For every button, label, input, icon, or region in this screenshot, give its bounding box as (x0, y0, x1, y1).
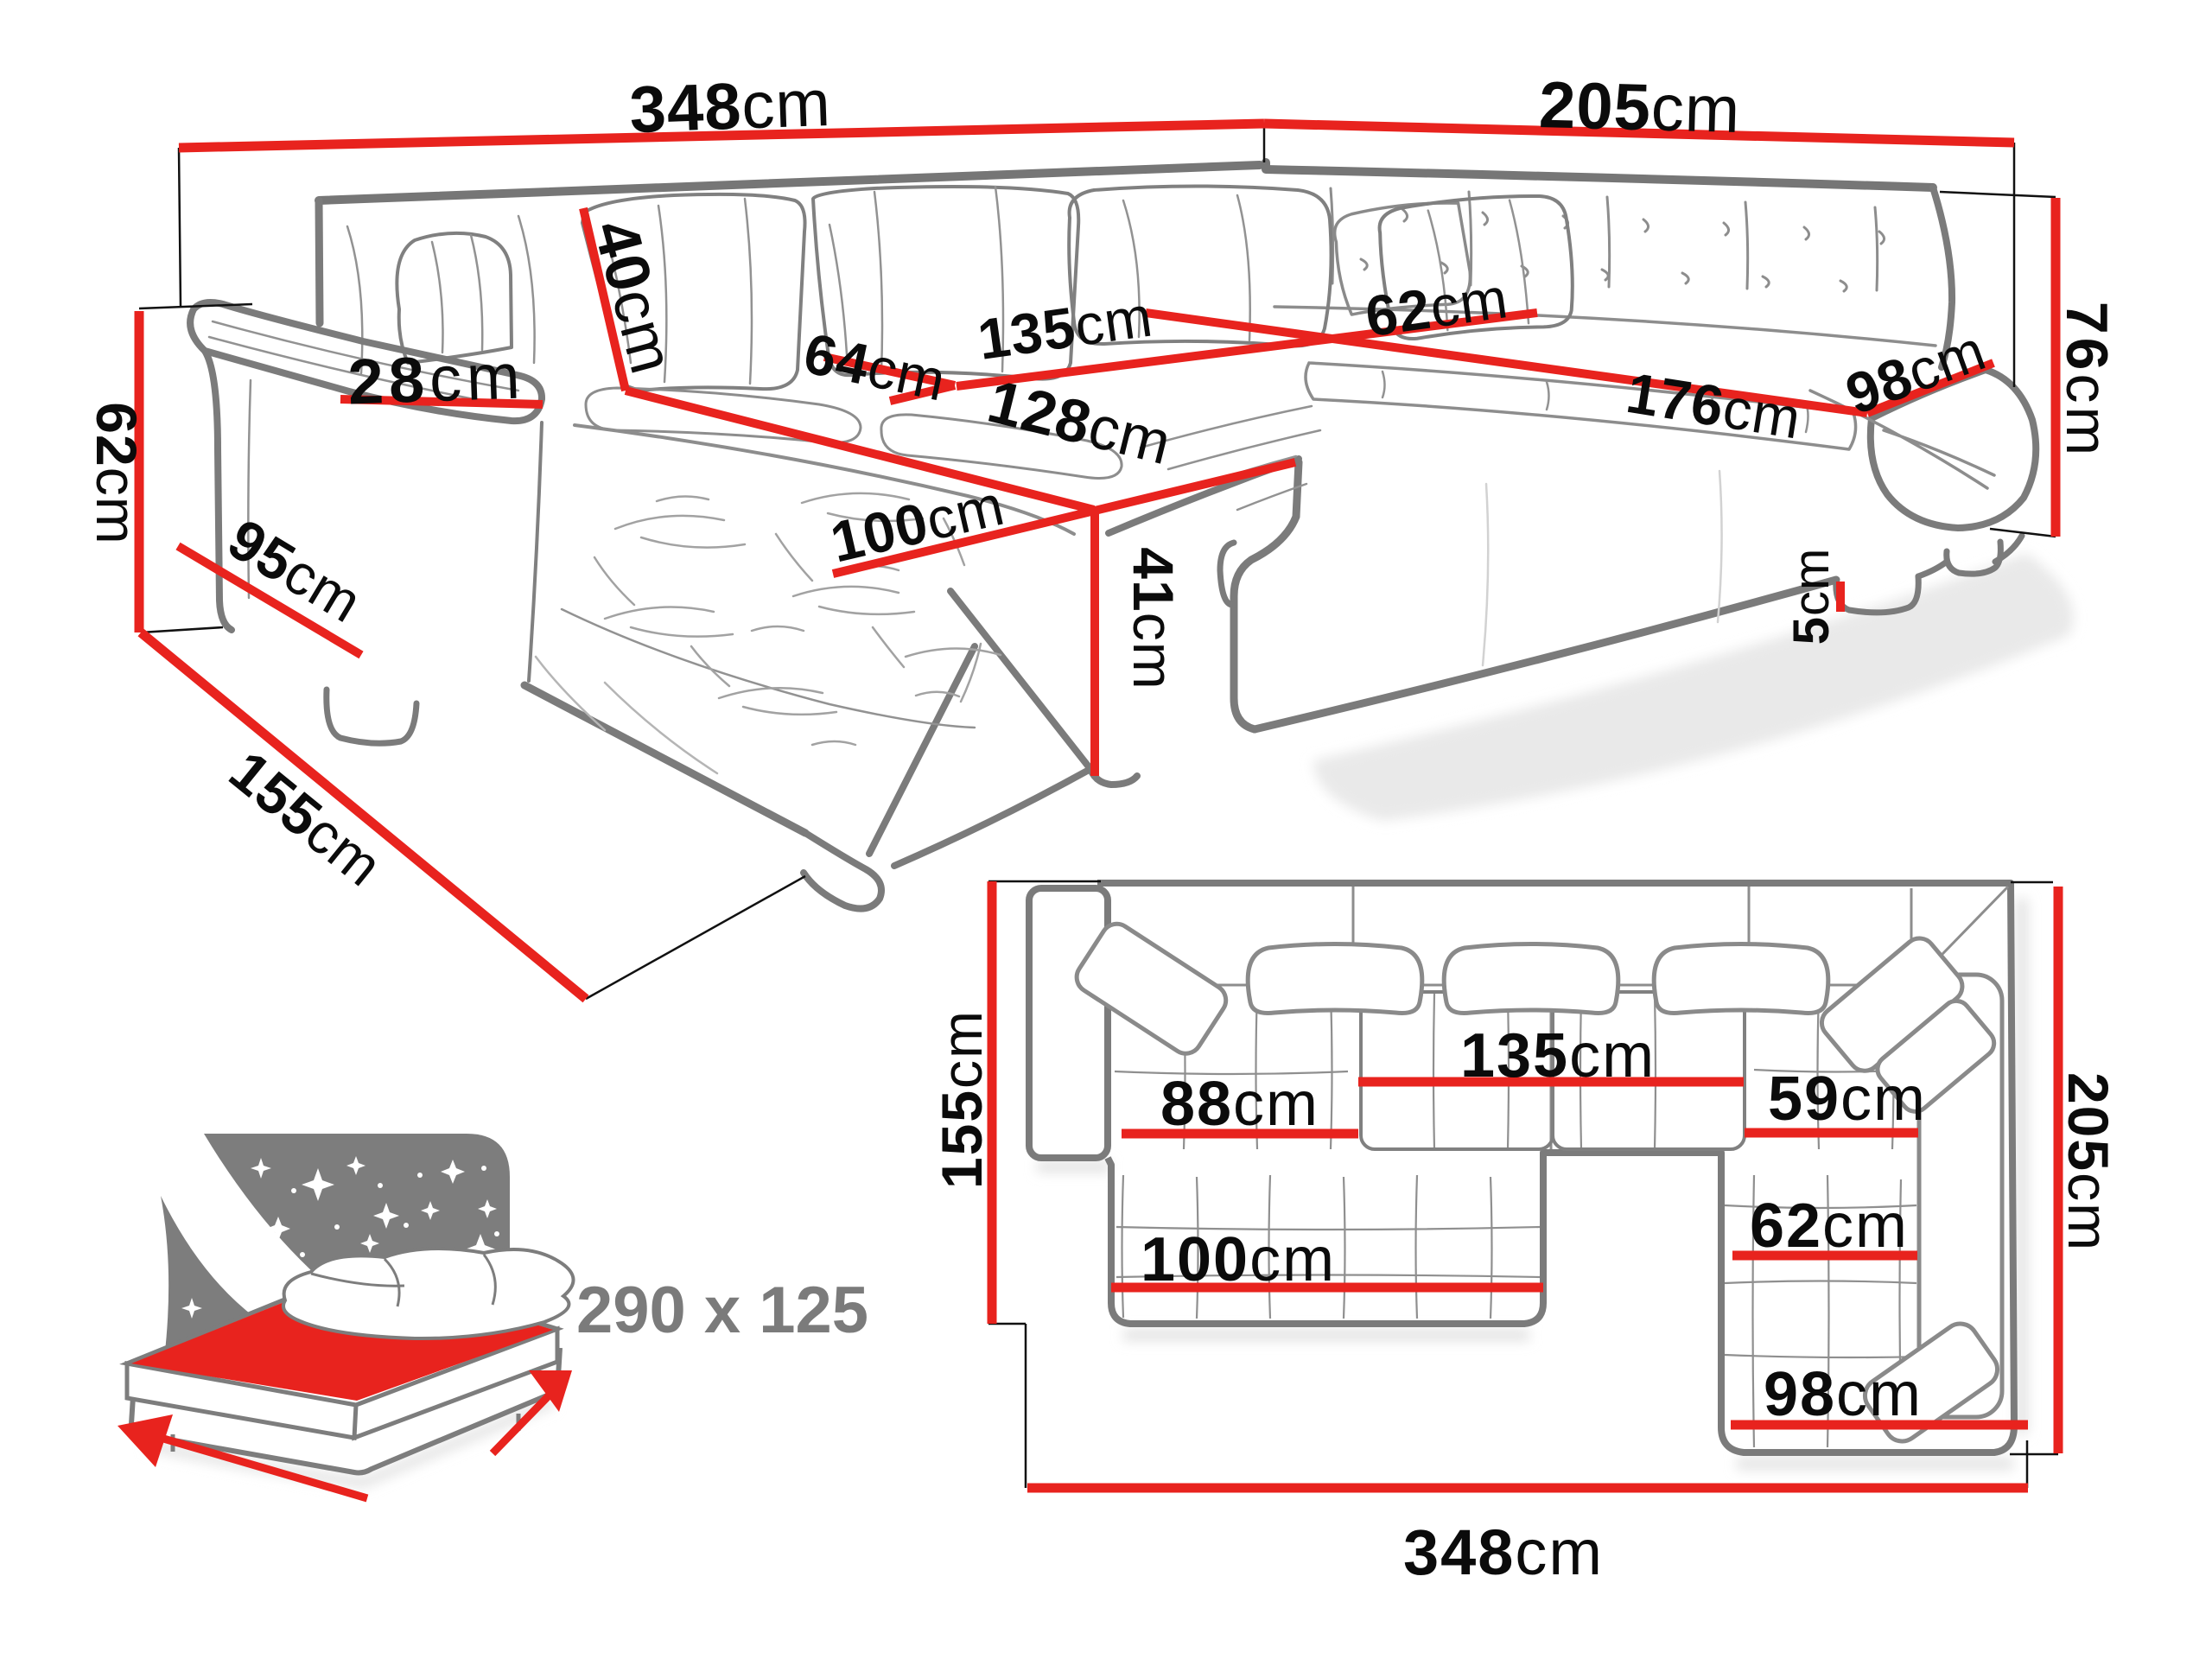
svg-text:59cm: 59cm (1768, 1065, 1927, 1134)
svg-text:205cm: 205cm (1538, 68, 1741, 147)
svg-text:290 x 125: 290 x 125 (576, 1274, 868, 1347)
svg-text:348cm: 348cm (1403, 1516, 1604, 1588)
svg-text:41cm: 41cm (1122, 547, 1185, 690)
svg-text:205cm: 205cm (2056, 1072, 2120, 1252)
svg-text:28cm: 28cm (346, 340, 526, 417)
svg-text:62cm: 62cm (85, 402, 149, 544)
svg-text:135cm: 135cm (1460, 1021, 1656, 1090)
svg-text:76cm: 76cm (2054, 302, 2120, 459)
svg-text:100cm: 100cm (1141, 1225, 1336, 1294)
svg-text:348cm: 348cm (628, 67, 832, 147)
svg-text:155cm: 155cm (930, 1009, 994, 1189)
svg-text:98cm: 98cm (1764, 1360, 1923, 1429)
svg-text:5cm: 5cm (1783, 548, 1840, 645)
svg-text:62cm: 62cm (1750, 1192, 1909, 1261)
svg-text:88cm: 88cm (1160, 1070, 1319, 1139)
